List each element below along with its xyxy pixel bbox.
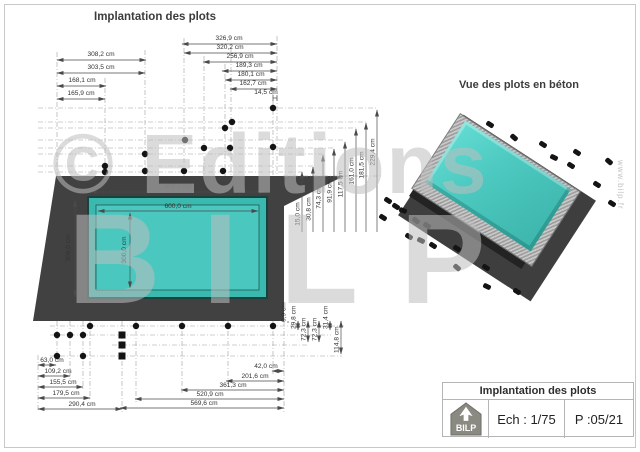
dim-label: 326,9 cm: [215, 35, 243, 42]
dim-label: 189,3 cm: [235, 62, 263, 69]
bilp-logo-icon: BILP: [450, 402, 482, 436]
dim-chain-top-right: 326,9 cm 320,2 cm 256,9 cm 189,3 cm 180,…: [182, 35, 278, 101]
dim-label: 320,2 cm: [216, 44, 244, 51]
dim-label: 14,5 cm: [254, 89, 278, 96]
title-block: Implantation des plots BILP Ech : 1/75 P…: [442, 382, 634, 437]
dim-chain-bottom-right: 42,0 cm 201,6 cm 361,3 cm 520,9 cm 569,6…: [120, 363, 284, 408]
dim-label: 162,7 cm: [239, 80, 267, 87]
dim-label: 290,4 cm: [68, 401, 96, 408]
dim-label: 361,3 cm: [219, 382, 247, 389]
dim-label: 165,9 cm: [67, 90, 95, 97]
bilp-logo-text: BILP: [455, 423, 475, 433]
dim-label: 63,0 cm: [40, 357, 64, 364]
dim-label: 155,5 cm: [49, 379, 77, 386]
dim-label: 201,6 cm: [241, 373, 269, 380]
bilp-logo: BILP: [443, 400, 489, 438]
watermark-bilp: BILP: [68, 196, 528, 324]
drawing-page: Implantation des plots Vue des plots en …: [0, 0, 640, 452]
page-label: P :05/21: [565, 400, 633, 438]
dim-label: 256,9 cm: [226, 53, 254, 60]
scale-label: Ech : 1/75: [489, 400, 565, 438]
dim-chain-bottom-left: 63,0 cm 109,2 cm 155,5 cm 179,5 cm 290,4…: [38, 357, 122, 409]
dim-chain-top-left: 308,2 cm 303,5 cm 168,1 cm 165,9 cm: [57, 51, 146, 99]
dim-label: 569,6 cm: [190, 400, 218, 407]
plan-view-title: Implantation des plots: [94, 11, 216, 23]
dim-label: 520,9 cm: [196, 391, 224, 398]
title-block-title: Implantation des plots: [443, 383, 633, 400]
3d-view-title: Vue des plots en béton: [459, 79, 579, 91]
plan-plots-square: [119, 332, 126, 360]
dim-label: 109,2 cm: [44, 368, 72, 375]
dim-label: 42,0 cm: [254, 363, 278, 370]
dim-label: 180,1 cm: [237, 71, 265, 78]
dim-label: 303,5 cm: [87, 64, 115, 71]
dim-label: 179,5 cm: [52, 390, 80, 397]
dim-label: 168,1 cm: [68, 77, 96, 84]
website-watermark: www.bilp.fr: [616, 160, 625, 210]
dim-label: 308,2 cm: [87, 51, 115, 58]
